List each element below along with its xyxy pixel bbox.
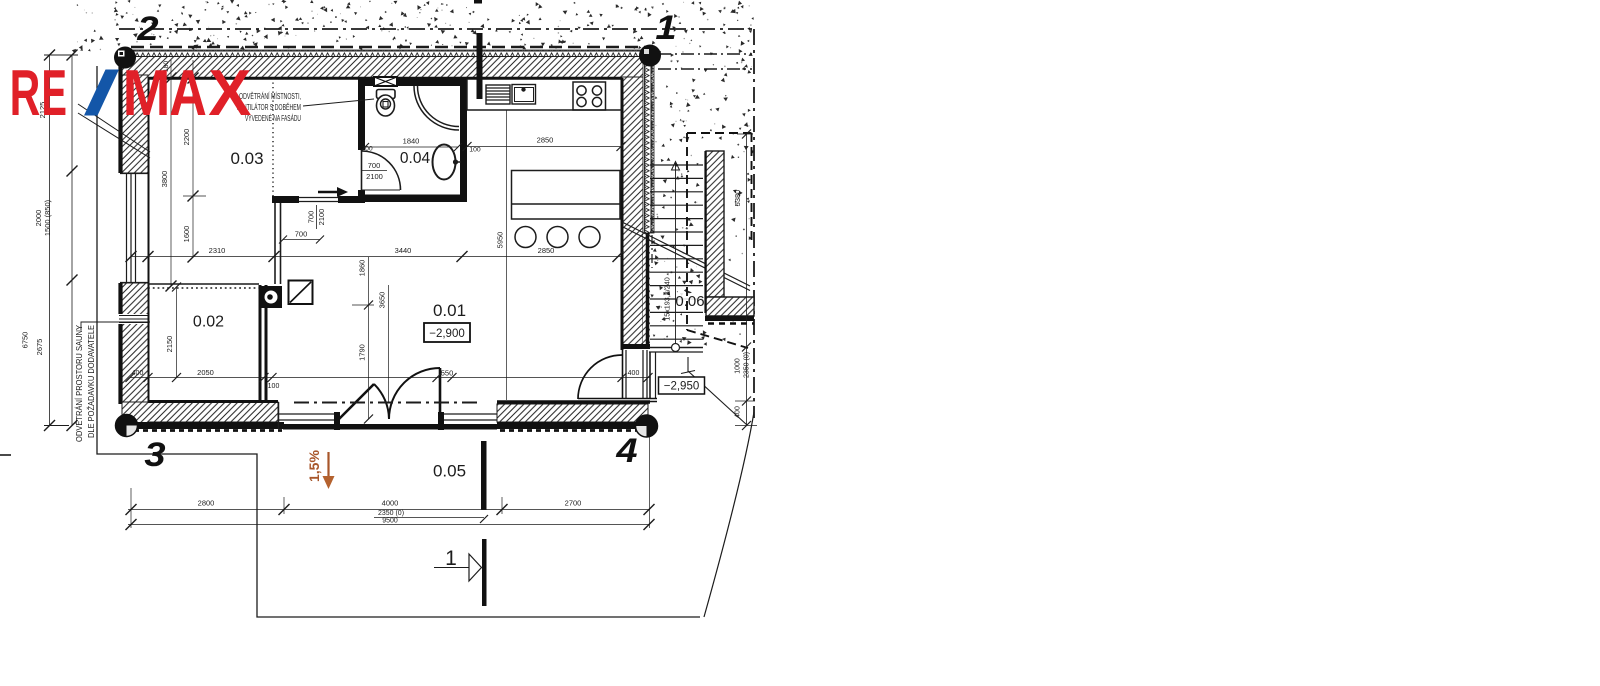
svg-text:1500 (850): 1500 (850) — [43, 199, 52, 236]
svg-text:2350 (0): 2350 (0) — [378, 510, 404, 517]
svg-text:550: 550 — [441, 369, 454, 378]
svg-text:1: 1 — [445, 547, 457, 570]
svg-text:2675: 2675 — [35, 339, 44, 356]
svg-text:700: 700 — [361, 146, 373, 153]
svg-text:−2,950: −2,950 — [664, 381, 700, 393]
svg-text:1600: 1600 — [182, 226, 191, 243]
svg-text:X: X — [208, 56, 251, 129]
svg-text:2100: 2100 — [366, 172, 383, 181]
svg-text:700: 700 — [307, 211, 316, 224]
svg-text:1860: 1860 — [358, 260, 367, 277]
svg-text:2850: 2850 — [537, 136, 554, 145]
svg-text:400: 400 — [628, 370, 640, 377]
svg-text:0.06: 0.06 — [675, 293, 704, 310]
svg-text:400: 400 — [132, 370, 144, 377]
svg-text:4: 4 — [615, 431, 637, 470]
svg-text:2: 2 — [136, 9, 158, 48]
svg-text:15x193,3/240: 15x193,3/240 — [663, 277, 672, 321]
svg-text:E: E — [42, 58, 67, 130]
svg-text:5950: 5950 — [496, 232, 505, 249]
svg-text:100: 100 — [469, 147, 481, 154]
svg-text:R: R — [10, 56, 41, 129]
svg-text:ODVĚTRÁNÍ PROSTORU SAUNY: ODVĚTRÁNÍ PROSTORU SAUNY — [74, 325, 84, 442]
svg-text:0.05: 0.05 — [433, 462, 466, 481]
svg-text:2310: 2310 — [209, 246, 226, 255]
svg-text:2000: 2000 — [34, 210, 43, 227]
svg-text:700: 700 — [295, 230, 308, 239]
svg-text:DLE POŽADAVKU DODAVATELE: DLE POŽADAVKU DODAVATELE — [86, 325, 96, 438]
svg-text:0.02: 0.02 — [193, 314, 224, 331]
svg-text:0.04: 0.04 — [400, 150, 431, 167]
svg-text:6750: 6750 — [21, 332, 30, 349]
svg-text:4000: 4000 — [382, 499, 399, 508]
svg-text:2800: 2800 — [198, 499, 215, 508]
svg-text:2350 (0): 2350 (0) — [744, 352, 751, 378]
svg-text:0.01: 0.01 — [433, 301, 466, 320]
svg-text:VYVEDENÉ NA FASÁDU: VYVEDENÉ NA FASÁDU — [245, 113, 301, 123]
svg-text:1: 1 — [655, 8, 676, 47]
svg-text:3650: 3650 — [378, 292, 387, 309]
svg-text:9500: 9500 — [382, 518, 398, 525]
svg-text:3440: 3440 — [395, 246, 412, 255]
svg-text:5380: 5380 — [733, 190, 742, 207]
svg-text:400: 400 — [735, 406, 742, 418]
svg-text:2200: 2200 — [182, 129, 191, 146]
svg-text:1000: 1000 — [735, 358, 742, 374]
svg-text:1,5%: 1,5% — [306, 450, 322, 482]
svg-text:A: A — [169, 58, 207, 130]
svg-text:2100: 2100 — [317, 209, 326, 226]
svg-text:0.03: 0.03 — [230, 149, 263, 168]
svg-text:2700: 2700 — [565, 499, 582, 508]
svg-text:M: M — [123, 57, 171, 130]
svg-text:2150: 2150 — [165, 336, 174, 353]
svg-text:3: 3 — [144, 435, 165, 474]
svg-text:2050: 2050 — [197, 368, 214, 377]
svg-text:2850: 2850 — [538, 246, 555, 255]
svg-text:−2,900: −2,900 — [429, 328, 465, 340]
svg-text:1840: 1840 — [403, 137, 420, 146]
svg-text:3800: 3800 — [160, 171, 169, 188]
svg-text:1790: 1790 — [358, 344, 367, 361]
svg-text:100: 100 — [268, 383, 280, 390]
svg-text:700: 700 — [368, 161, 381, 170]
